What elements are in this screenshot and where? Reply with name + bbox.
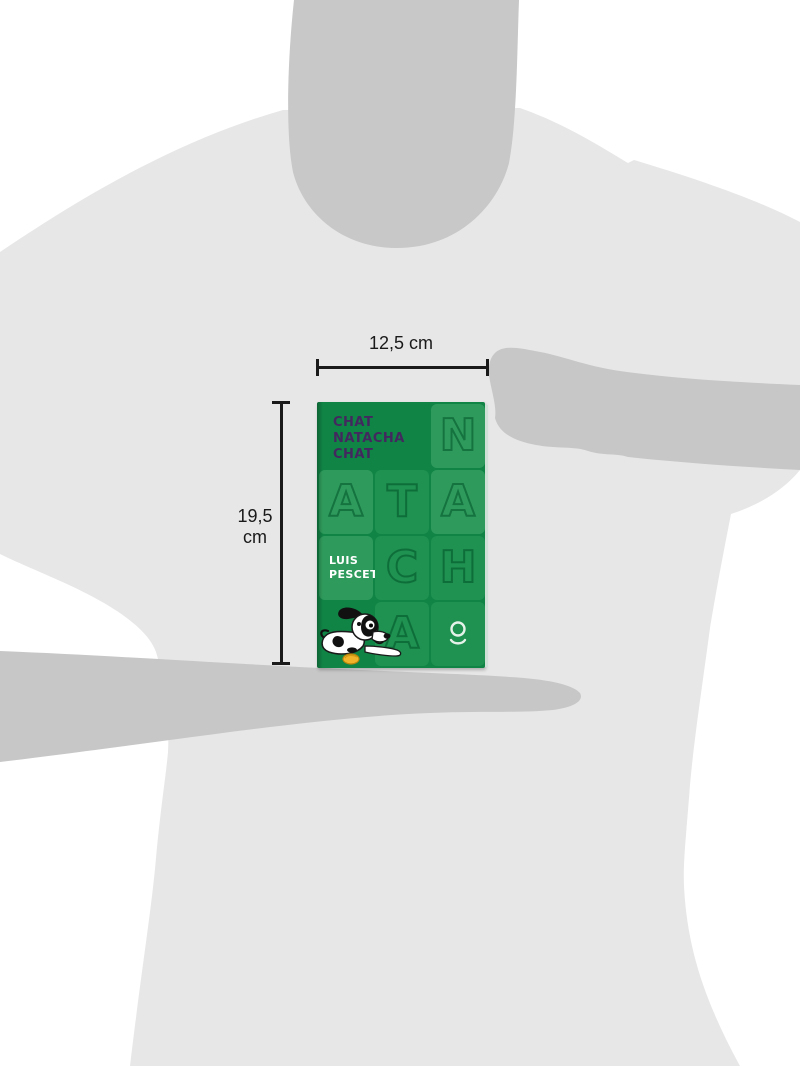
loqueleo-publisher-logo-icon — [445, 619, 471, 649]
book-title: CHAT NATACHA CHAT — [333, 415, 405, 463]
dog-illustration — [319, 606, 407, 666]
cover-tile-n: N — [431, 404, 485, 468]
width-dimension-label: 12,5 cm — [330, 333, 472, 354]
cover-tile-a1: A — [319, 470, 373, 534]
tile-letter-h: H — [440, 546, 477, 590]
cover-tile-h: H — [431, 536, 485, 600]
book-page-edge — [485, 405, 488, 667]
title-line-1: CHAT — [333, 415, 405, 431]
tile-letter-c: C — [386, 546, 418, 590]
product-dimension-image: 12,5 cm 19,5 cm N A T A LUIS PESCETTI — [0, 0, 800, 1066]
height-dimension-value: 19,5 — [222, 506, 288, 527]
tile-letter-n: N — [440, 414, 477, 458]
cover-tile-c: C — [375, 536, 429, 600]
cover-tile-a2: A — [431, 470, 485, 534]
tile-letter-t: T — [387, 480, 417, 524]
title-line-2: NATACHA — [333, 431, 405, 447]
cover-tile-logo — [431, 602, 485, 666]
height-dimension-tick-bottom — [272, 662, 290, 665]
tile-letter-a2: A — [441, 480, 475, 524]
height-dimension-unit: cm — [222, 527, 288, 548]
height-dimension-tick-top — [272, 401, 290, 404]
width-dimension-tick-right — [486, 359, 489, 376]
cover-tile-t: T — [375, 470, 429, 534]
height-dimension-label: 19,5 cm — [222, 506, 288, 548]
book-cover: N A T A LUIS PESCETTI C H A — [317, 402, 485, 668]
height-dimension-line — [280, 402, 283, 665]
cartoon-dog-with-ball-icon — [319, 606, 407, 666]
width-dimension-tick-left — [316, 359, 319, 376]
width-dimension-line — [317, 366, 489, 369]
title-line-3: CHAT — [333, 447, 405, 463]
cover-tile-author: LUIS PESCETTI — [319, 536, 373, 600]
book-spine-shading — [317, 402, 323, 668]
tile-letter-a1: A — [329, 480, 363, 524]
